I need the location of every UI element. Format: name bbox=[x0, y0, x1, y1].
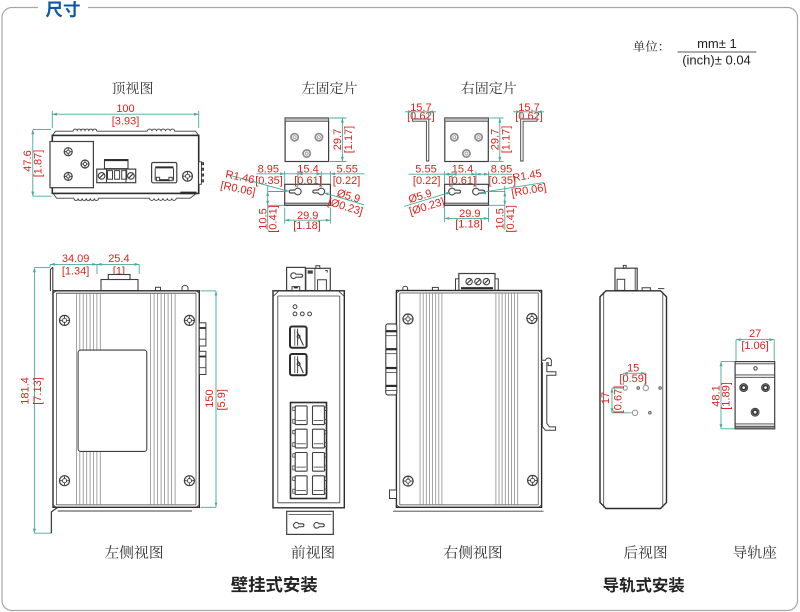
svg-text:[0.62]: [0.62] bbox=[407, 111, 435, 123]
svg-text:(inch)± 0.04: (inch)± 0.04 bbox=[682, 53, 751, 68]
svg-text:[0.22]: [0.22] bbox=[333, 175, 361, 187]
svg-text:[1.89]: [1.89] bbox=[721, 382, 733, 410]
svg-text:[1.18]: [1.18] bbox=[293, 220, 321, 232]
svg-text:[0.59]: [0.59] bbox=[619, 373, 647, 385]
svg-text:[0.61]: [0.61] bbox=[294, 175, 322, 187]
svg-text:[1.18]: [1.18] bbox=[455, 219, 483, 231]
svg-text:[0.62]: [0.62] bbox=[515, 111, 543, 123]
svg-text:29.7: 29.7 bbox=[332, 129, 344, 150]
svg-text:150: 150 bbox=[204, 389, 216, 407]
svg-text:15.4: 15.4 bbox=[297, 164, 318, 176]
svg-text:[0.41]: [0.41] bbox=[505, 205, 517, 233]
svg-text:25.4: 25.4 bbox=[108, 253, 129, 265]
svg-text:8.95: 8.95 bbox=[258, 164, 279, 176]
svg-text:[1.06]: [1.06] bbox=[741, 340, 769, 352]
svg-text:[5.9]: [5.9] bbox=[216, 389, 228, 410]
svg-text:[0.22]: [0.22] bbox=[413, 175, 441, 187]
svg-text:[1.87]: [1.87] bbox=[32, 150, 44, 178]
svg-text:[1.17]: [1.17] bbox=[343, 126, 355, 154]
svg-text:[1.17]: [1.17] bbox=[501, 126, 513, 154]
svg-text:[0.35]: [0.35] bbox=[255, 175, 283, 187]
svg-text:27: 27 bbox=[749, 328, 761, 340]
svg-text:[3.93]: [3.93] bbox=[112, 115, 140, 127]
svg-text:181.4: 181.4 bbox=[20, 377, 32, 405]
svg-text:29.7: 29.7 bbox=[489, 129, 501, 150]
svg-text:[0.67]: [0.67] bbox=[612, 386, 624, 414]
svg-text:100: 100 bbox=[116, 103, 134, 115]
svg-text:mm± 1: mm± 1 bbox=[697, 36, 737, 51]
svg-text:[1.34]: [1.34] bbox=[62, 266, 90, 278]
svg-text:34.09: 34.09 bbox=[62, 253, 90, 265]
svg-text:5.55: 5.55 bbox=[336, 164, 357, 176]
svg-text:[0.61]: [0.61] bbox=[449, 175, 477, 187]
svg-text:17: 17 bbox=[600, 392, 612, 404]
svg-text:[7.13]: [7.13] bbox=[32, 377, 44, 405]
svg-text:[0.41]: [0.41] bbox=[268, 205, 280, 233]
